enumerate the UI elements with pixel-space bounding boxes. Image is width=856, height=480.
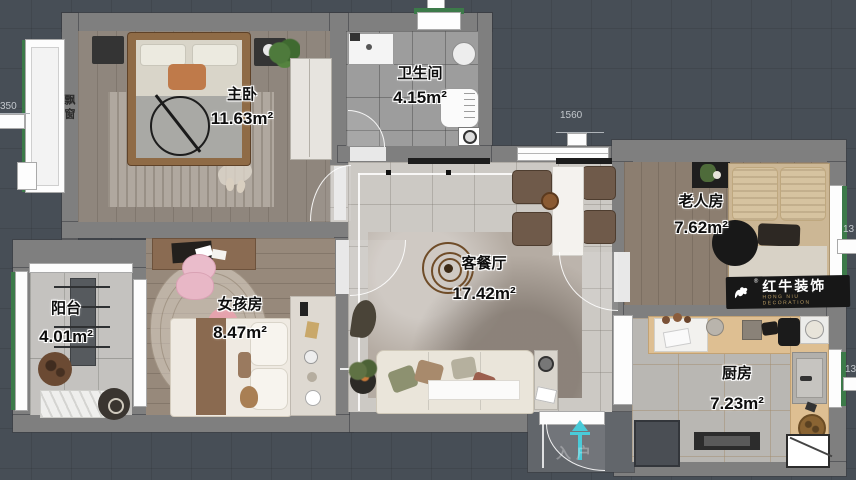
faucet-dot bbox=[366, 44, 372, 50]
room-area: 8.47m² bbox=[213, 323, 267, 342]
room-label-girl: 女孩房 8.47m² bbox=[213, 296, 267, 342]
drying-rack-bar bbox=[54, 286, 110, 288]
room-name: 厨房 bbox=[710, 365, 764, 382]
room-area: 17.42m² bbox=[452, 284, 515, 303]
room-label-elderly: 老人房 7.62m² bbox=[674, 193, 728, 237]
room-label-balcony: 阳台 4.01m² bbox=[39, 300, 93, 346]
pot bbox=[706, 318, 724, 336]
master-nightstand-left bbox=[92, 36, 124, 64]
registered-mark: ® bbox=[754, 279, 759, 285]
curtain-track bbox=[556, 158, 612, 164]
wardrobe-item bbox=[304, 350, 318, 364]
bathroom-window bbox=[418, 13, 460, 29]
side-table-lamp bbox=[538, 356, 554, 372]
dim-tick bbox=[568, 134, 586, 145]
room-area: 11.63m² bbox=[211, 109, 273, 128]
elderly-pillow bbox=[780, 167, 826, 221]
entrance-arrow-head bbox=[572, 420, 588, 431]
master-wardrobe bbox=[290, 58, 332, 160]
room-name: 老人房 bbox=[674, 193, 728, 210]
vegetable bbox=[684, 316, 691, 323]
room-name: 女孩房 bbox=[213, 296, 267, 313]
dim-right-upper-partial: 13 bbox=[843, 224, 854, 235]
balcony-washer-dot bbox=[108, 398, 124, 414]
room-area: 4.01m² bbox=[39, 327, 93, 346]
washer-drum bbox=[463, 130, 477, 144]
wardrobe-item bbox=[307, 372, 317, 382]
room-area: 7.23m² bbox=[710, 394, 764, 413]
ceiling-dot bbox=[446, 170, 451, 175]
wardrobe-item bbox=[305, 390, 321, 406]
dining-chair bbox=[582, 166, 616, 200]
master-wardrobe-line bbox=[309, 59, 310, 157]
drying-rack-bar bbox=[54, 346, 110, 348]
dining-chair bbox=[582, 210, 616, 244]
kitchen-mat-inner bbox=[704, 436, 750, 446]
girls-door-opening bbox=[336, 240, 349, 294]
elderly-pillow bbox=[732, 167, 778, 221]
balcony-window bbox=[16, 272, 27, 410]
watermark-brand: 红牛装饰 bbox=[762, 278, 844, 294]
dim-line bbox=[556, 132, 604, 133]
dining-chair bbox=[512, 212, 552, 246]
bathtub-hatch bbox=[464, 93, 475, 121]
coffee-table bbox=[428, 380, 520, 400]
bathroom-door-opening bbox=[350, 147, 386, 161]
coffee-machine bbox=[778, 318, 800, 346]
master-pillow-left bbox=[140, 44, 186, 66]
master-slippers bbox=[226, 178, 234, 191]
dim-left-partial: 350 bbox=[0, 101, 17, 112]
watermark-subtitle: HONG NIU DECORATION bbox=[762, 293, 844, 306]
grill-pan bbox=[761, 321, 779, 336]
bowl bbox=[805, 320, 824, 339]
shower-drain bbox=[452, 42, 476, 66]
vegetable bbox=[662, 316, 670, 324]
room-label-bathroom: 卫生间 4.15m² bbox=[393, 65, 447, 107]
entrance-label: 入户 bbox=[556, 442, 596, 463]
wall bbox=[62, 13, 78, 240]
pendant-lamp bbox=[541, 192, 559, 210]
dim-right-lower-partial: 131 bbox=[845, 364, 856, 375]
room-label-kitchen: 厨房 7.23m² bbox=[710, 365, 764, 413]
dim-tick bbox=[0, 115, 24, 128]
entrance-door-leaf bbox=[542, 424, 544, 468]
wall bbox=[612, 140, 846, 162]
watermark: ® 红牛装饰 HONG NIU DECORATION bbox=[726, 275, 851, 309]
room-name: 客餐厅 bbox=[452, 255, 515, 272]
bull-logo-icon bbox=[732, 284, 750, 302]
vegetable bbox=[673, 313, 682, 322]
girls-chair-seat bbox=[176, 272, 214, 300]
room-area: 7.62m² bbox=[674, 218, 728, 237]
dim-tick bbox=[844, 378, 856, 390]
master-pillow-right bbox=[192, 44, 238, 66]
bathroom-shelf bbox=[350, 33, 360, 41]
dim-top-window: 1560 bbox=[560, 110, 582, 121]
sofa-plant-leaves bbox=[346, 358, 380, 384]
dim-tick bbox=[838, 240, 856, 253]
girls-brown-pillow bbox=[238, 352, 251, 378]
teddy-bear bbox=[240, 386, 258, 408]
ceiling-dot bbox=[386, 170, 391, 175]
balcony-slider-door bbox=[134, 280, 146, 406]
room-area: 4.15m² bbox=[393, 88, 447, 107]
kitchen-window bbox=[829, 350, 841, 407]
dining-table bbox=[552, 166, 584, 256]
curtain-track bbox=[408, 158, 490, 164]
dim-line bbox=[0, 113, 30, 114]
room-label-master: 主卧 11.63m² bbox=[211, 86, 273, 128]
bay-window-label: 飘窗 bbox=[61, 94, 77, 122]
wall bbox=[62, 222, 348, 238]
kitchen-door-opening bbox=[614, 316, 632, 404]
wardrobe-item bbox=[300, 302, 308, 316]
floor-plan: 入户 主卧 11.63m² 卫生间 4.15m² 老人房 7.62m² 客餐厅 … bbox=[0, 0, 856, 480]
sink-faucet bbox=[800, 376, 812, 381]
fridge bbox=[634, 420, 680, 467]
dining-window-line bbox=[518, 153, 608, 154]
balcony-top-window bbox=[30, 264, 132, 272]
room-name: 卫生间 bbox=[393, 65, 447, 82]
wall bbox=[478, 13, 492, 162]
room-name: 阳台 bbox=[39, 300, 93, 317]
balcony-plant bbox=[38, 352, 72, 386]
room-label-living: 客餐厅 17.42m² bbox=[452, 255, 515, 303]
chopping-block bbox=[742, 320, 762, 340]
ac-platform bbox=[18, 163, 36, 189]
elderly-dark-pillow bbox=[758, 223, 801, 246]
room-name: 主卧 bbox=[211, 86, 273, 103]
artwork-flower bbox=[713, 171, 721, 179]
master-accent-pillow bbox=[168, 64, 206, 90]
